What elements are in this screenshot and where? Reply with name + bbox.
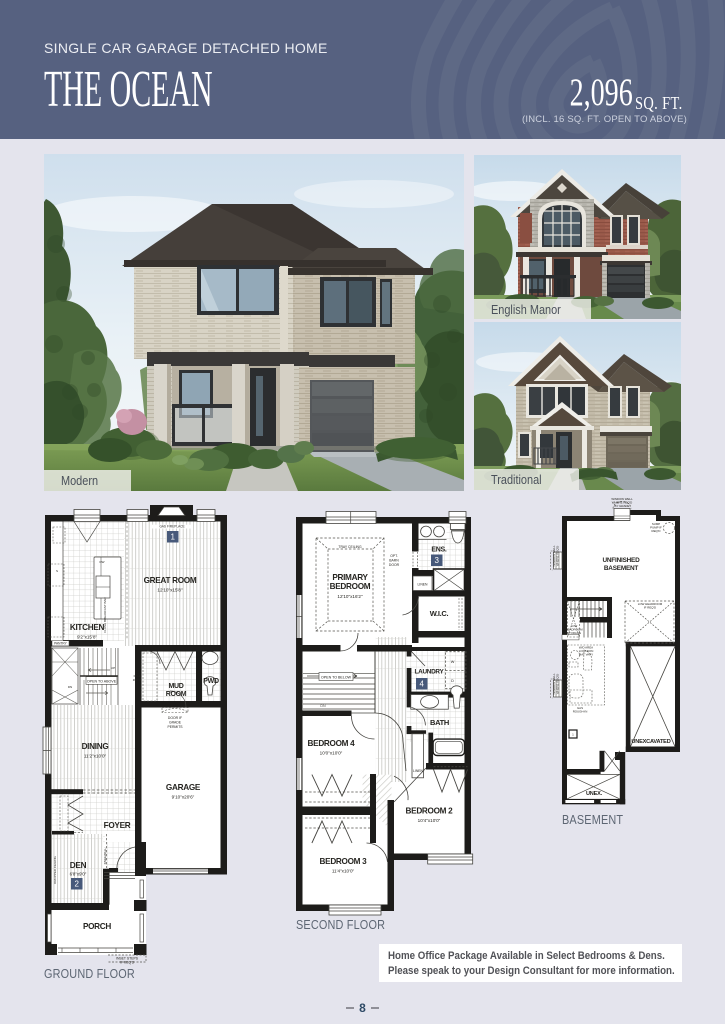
svg-text:3: 3: [434, 556, 439, 565]
svg-text:W: W: [451, 660, 455, 664]
svg-text:DN: DN: [320, 704, 326, 708]
svg-text:GRADE: GRADE: [169, 721, 182, 725]
svg-text:OPEN TO ABOVE: OPEN TO ABOVE: [87, 679, 117, 683]
svg-text:WHERE REQ'D: WHERE REQ'D: [556, 674, 560, 694]
svg-text:ENS.: ENS.: [431, 547, 446, 554]
svg-text:PERMITS: PERMITS: [167, 725, 183, 729]
svg-text:UNEX.: UNEX.: [586, 791, 603, 797]
svg-text:GAS FIREPLACE: GAS FIREPLACE: [159, 525, 184, 529]
svg-text:FOYER: FOYER: [104, 821, 131, 830]
svg-text:OPT.: OPT.: [390, 554, 398, 558]
svg-text:DOUBLE HANGING: DOUBLE HANGING: [465, 600, 469, 628]
svg-text:DN: DN: [68, 685, 72, 689]
svg-text:ROUGH-IN: ROUGH-IN: [573, 710, 588, 714]
svg-text:LINEN: LINEN: [413, 769, 424, 773]
svg-text:6'8"x9'0": 6'8"x9'0": [70, 872, 87, 877]
svg-text:TRAY CEILING: TRAY CEILING: [338, 545, 362, 549]
svg-text:DINING: DINING: [82, 742, 109, 751]
svg-text:WHERE REQ'D: WHERE REQ'D: [556, 546, 560, 566]
svg-text:LINEN: LINEN: [418, 583, 429, 587]
svg-text:BEDROOM 3: BEDROOM 3: [320, 857, 368, 866]
svg-text:IF REQ'D: IF REQ'D: [644, 606, 656, 610]
svg-text:FLUSH BREAKFAST BAR: FLUSH BREAKFAST BAR: [103, 597, 107, 633]
svg-text:LAUNDRY: LAUNDRY: [415, 669, 445, 676]
svg-text:OPEN TO BELOW: OPEN TO BELOW: [321, 676, 352, 680]
svg-text:PRIMARY: PRIMARY: [332, 573, 368, 582]
svg-text:12'10"x15'8": 12'10"x15'8": [157, 588, 183, 593]
svg-text:UP: UP: [111, 666, 115, 670]
svg-text:BEDROOM: BEDROOM: [330, 582, 371, 591]
svg-text:KITCHEN: KITCHEN: [70, 623, 105, 632]
svg-text:BATH: BATH: [430, 718, 449, 727]
svg-text:PANTRY: PANTRY: [54, 642, 68, 646]
svg-text:11'4"x10'0": 11'4"x10'0": [332, 869, 355, 874]
svg-text:11'2"x10'0": 11'2"x10'0": [84, 754, 107, 759]
svg-text:1: 1: [170, 533, 175, 542]
svg-text:GARAGE: GARAGE: [166, 783, 201, 792]
svg-text:DW: DW: [100, 560, 105, 564]
svg-text:W.I.C.: W.I.C.: [430, 609, 449, 618]
svg-text:DEN: DEN: [70, 861, 87, 870]
svg-text:UNEXCAVATED: UNEXCAVATED: [631, 739, 670, 745]
svg-text:2: 2: [74, 880, 79, 889]
svg-text:4: 4: [419, 680, 424, 689]
svg-text:MUD: MUD: [168, 683, 183, 690]
svg-text:IF REQ'D: IF REQ'D: [120, 960, 135, 964]
svg-text:KNEEWALL: KNEEWALL: [103, 848, 107, 865]
svg-text:BEDROOM 4: BEDROOM 4: [308, 739, 356, 748]
svg-text:10'0"x10'0": 10'0"x10'0": [320, 751, 343, 756]
svg-text:GREAT ROOM: GREAT ROOM: [144, 576, 197, 585]
svg-text:D: D: [451, 679, 454, 683]
svg-text:DROPPED CEILING: DROPPED CEILING: [53, 856, 57, 884]
svg-text:PORCH: PORCH: [83, 922, 111, 931]
svg-text:ROOM: ROOM: [166, 691, 187, 698]
svg-text:BARN: BARN: [389, 559, 399, 563]
svg-text:BY GRADE: BY GRADE: [615, 504, 630, 508]
svg-text:MAY VARY: MAY VARY: [579, 653, 593, 657]
svg-text:S: S: [56, 569, 58, 573]
svg-text:DOOR: DOOR: [389, 563, 400, 567]
svg-text:12'10"x16'2": 12'10"x16'2": [337, 594, 363, 599]
svg-text:PWD: PWD: [203, 678, 219, 685]
svg-text:UNFINISHED: UNFINISHED: [602, 557, 640, 564]
svg-text:STORAGE: STORAGE: [567, 631, 581, 635]
svg-text:BEDROOM 2: BEDROOM 2: [406, 807, 454, 816]
svg-text:9'2"x15'8": 9'2"x15'8": [77, 635, 97, 640]
svg-text:9'10"x20'6": 9'10"x20'6": [172, 795, 195, 800]
svg-text:REQ'D: REQ'D: [652, 529, 661, 533]
svg-text:REC'D: REC'D: [133, 678, 141, 682]
svg-text:10'4"x10'0": 10'4"x10'0": [418, 818, 441, 823]
svg-text:BASEMENT: BASEMENT: [604, 565, 639, 572]
svg-text:OPT. DRYERS: OPT. DRYERS: [468, 660, 472, 680]
svg-text:DOOR IF: DOOR IF: [168, 716, 182, 720]
